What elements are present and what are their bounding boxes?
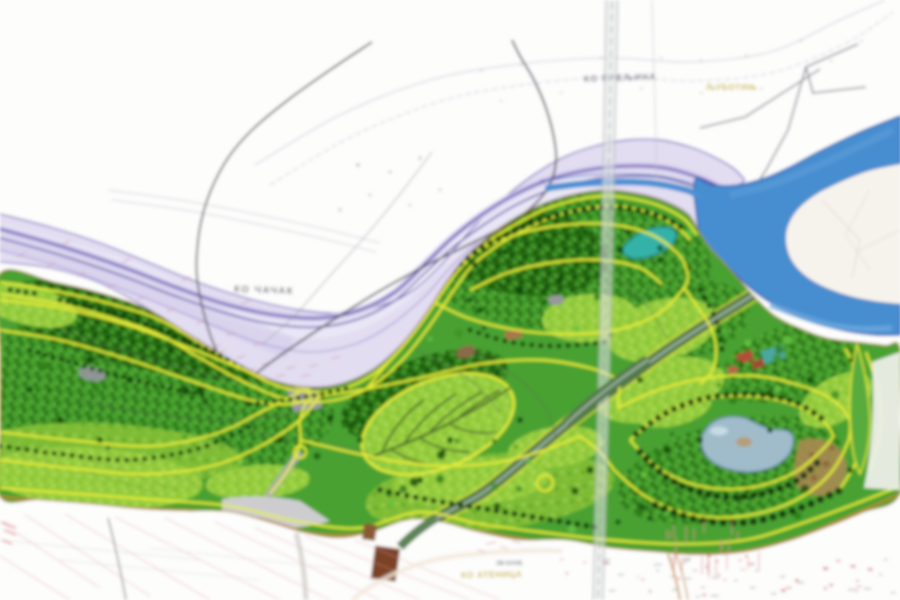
svg-text:ЗВ-5АНБ: ЗВ-5АНБ xyxy=(496,561,523,567)
svg-text:КО АТЕНИЦА: КО АТЕНИЦА xyxy=(461,569,523,580)
svg-text:ЉУБОТИЊ: ЉУБОТИЊ xyxy=(706,82,757,92)
svg-text:КО ЧАЧАК: КО ЧАЧАК xyxy=(234,284,294,297)
